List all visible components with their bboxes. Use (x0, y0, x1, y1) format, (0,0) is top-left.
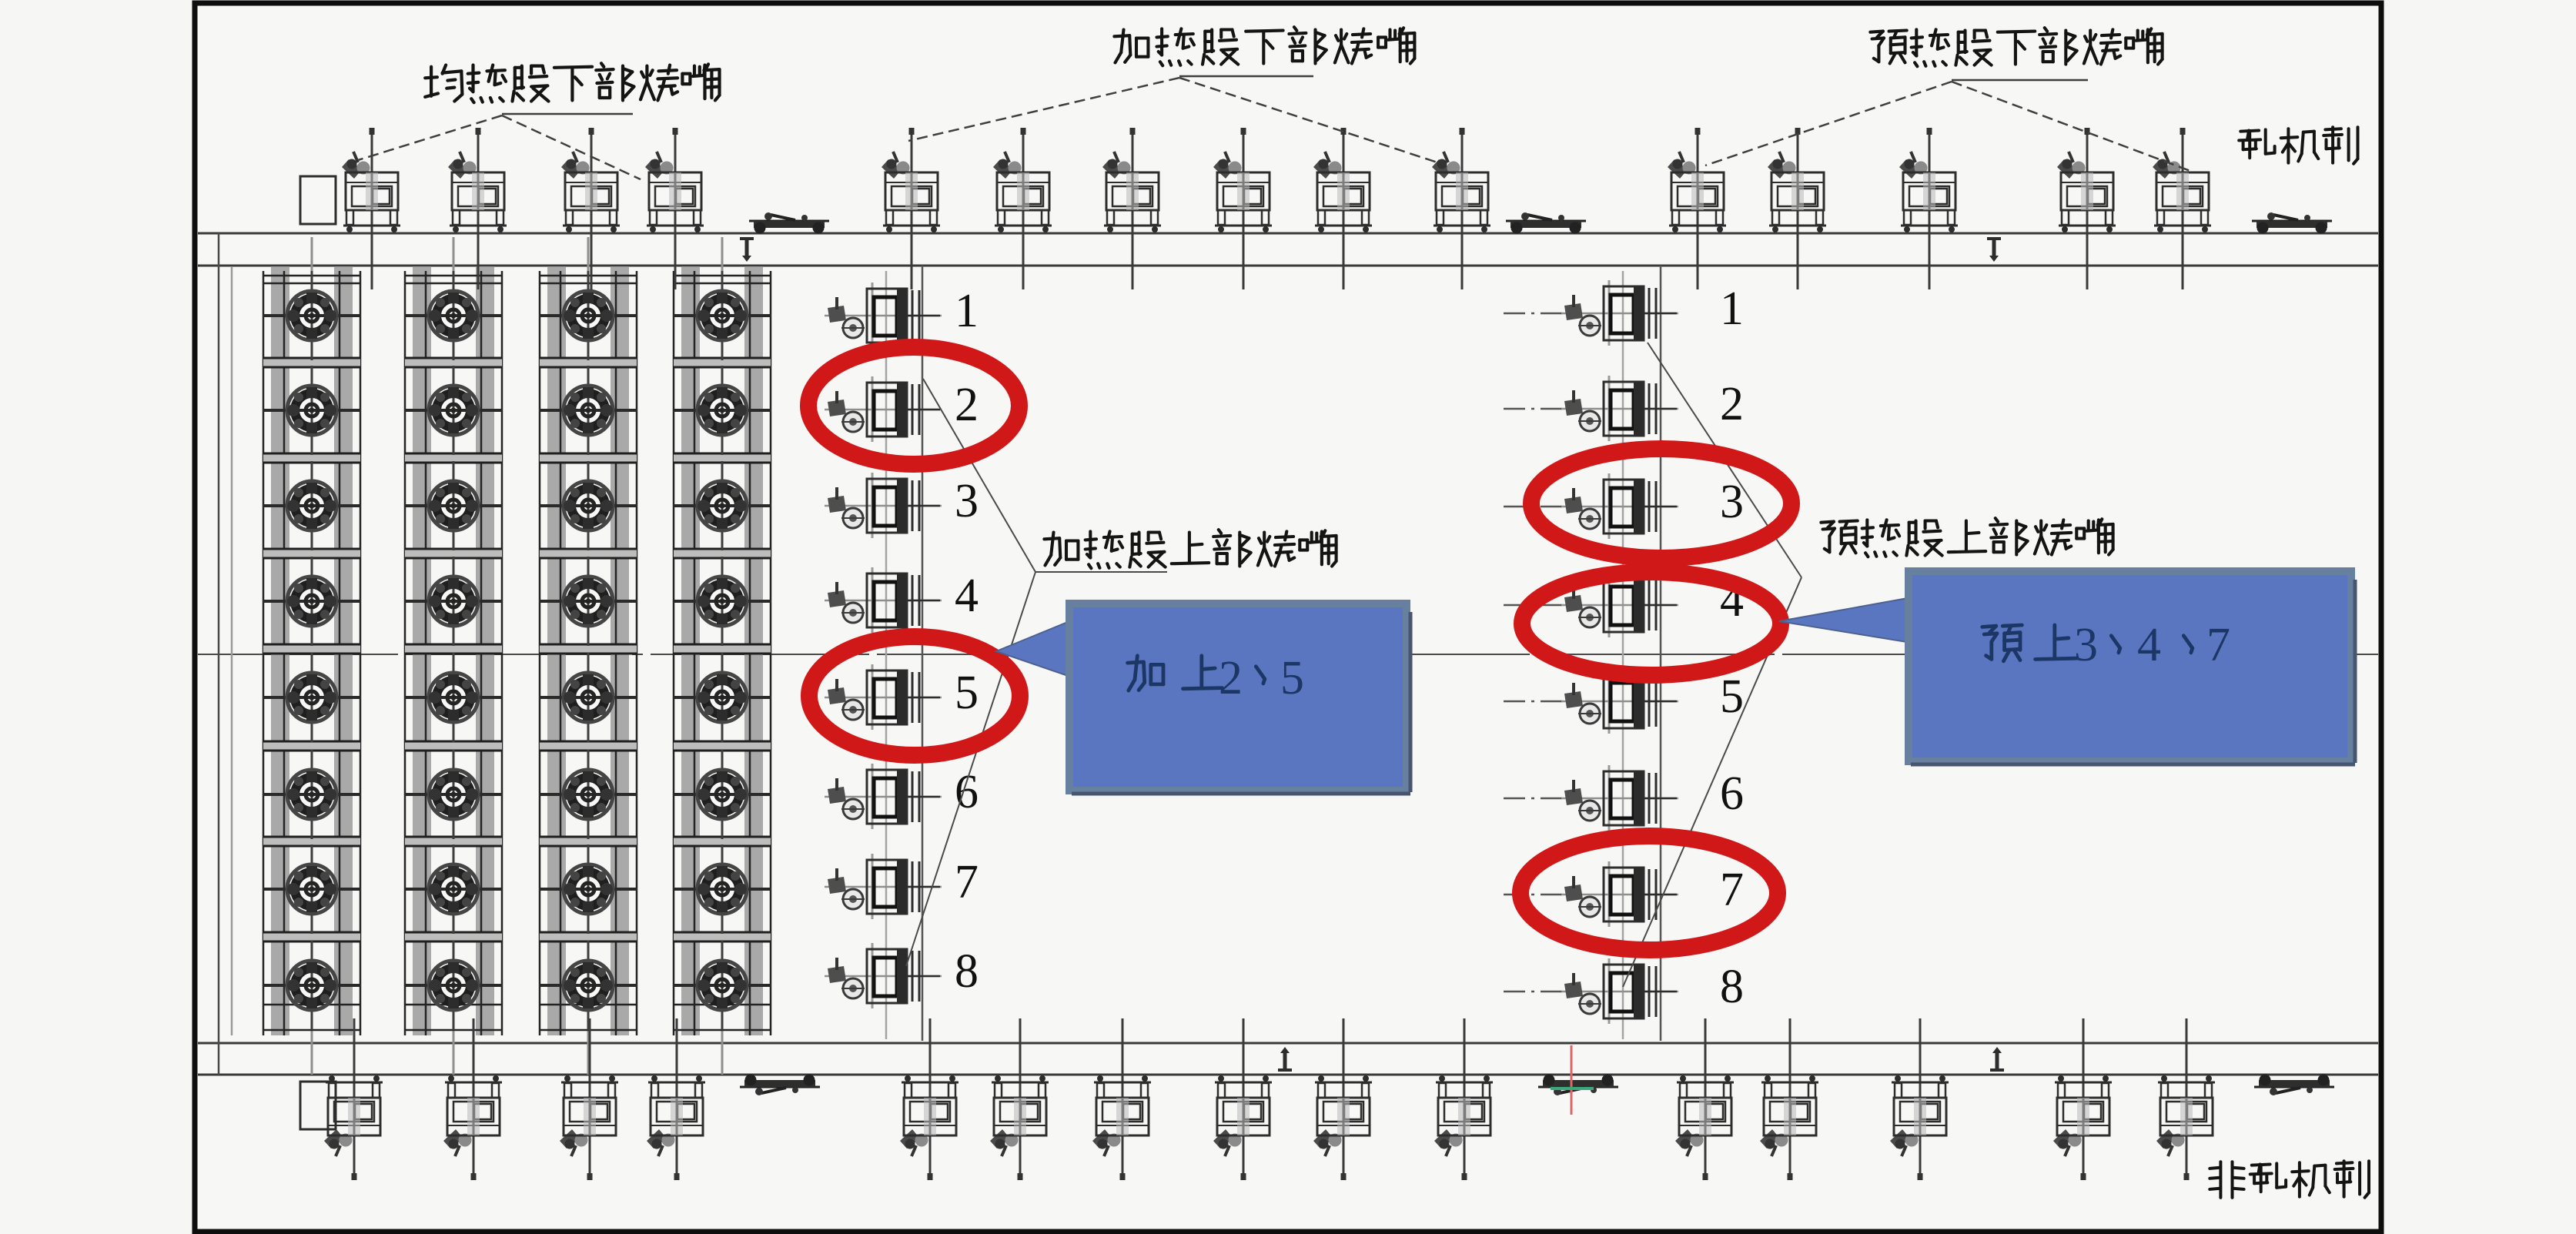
svg-text:6: 6 (955, 766, 979, 818)
svg-text:3: 3 (955, 475, 979, 527)
svg-text:5: 5 (1720, 671, 1744, 723)
svg-text:7: 7 (955, 856, 979, 908)
svg-text:6: 6 (1720, 767, 1744, 820)
svg-text:1: 1 (1720, 283, 1744, 335)
svg-text:7: 7 (2206, 619, 2230, 671)
svg-text:8: 8 (955, 945, 979, 998)
svg-text:3: 3 (2074, 619, 2098, 671)
svg-text:2: 2 (1219, 652, 1243, 704)
svg-text:1: 1 (955, 285, 979, 337)
svg-text:5: 5 (1280, 652, 1304, 704)
svg-text:5: 5 (955, 667, 979, 719)
svg-text:8: 8 (1720, 961, 1744, 1013)
svg-text:2: 2 (955, 379, 979, 431)
svg-text:4: 4 (955, 570, 979, 622)
svg-text:2: 2 (1720, 378, 1744, 430)
svg-text:7: 7 (1720, 864, 1744, 916)
svg-text:4: 4 (2137, 619, 2161, 671)
